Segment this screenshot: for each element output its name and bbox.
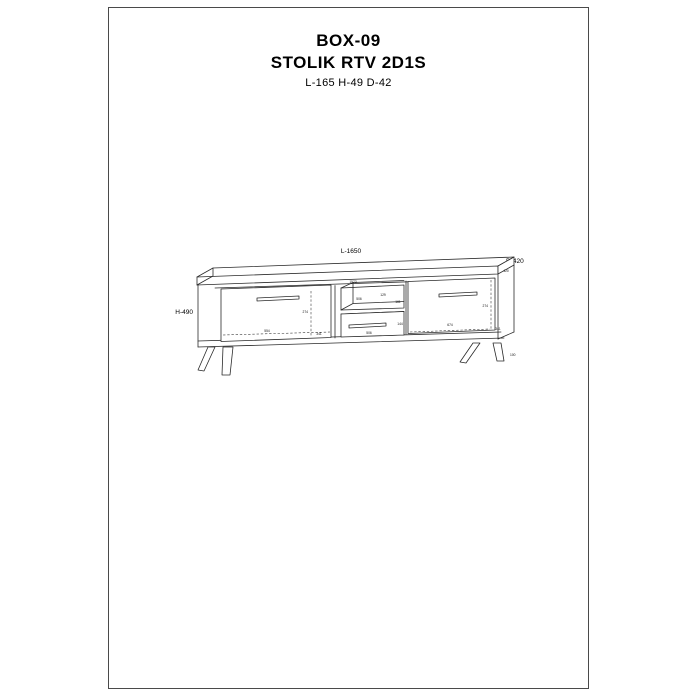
niche-width-label: 506 <box>356 297 362 301</box>
drawer: 144 506 <box>341 312 404 338</box>
drawer-width-label: 506 <box>366 331 372 335</box>
left-door: 274 554 341 <box>221 285 331 342</box>
drawer-height-label: 144 <box>397 322 403 326</box>
left-door-width-label: 554 <box>264 329 270 333</box>
niche-depth-label: 161 <box>395 300 401 304</box>
screenshot-canvas: BOX-09 STOLIK RTV 2D1S L-165 H-49 D-42 L… <box>0 0 700 700</box>
leg-height-label: 100 <box>510 353 516 357</box>
right-door: 274 674 341 <box>406 278 501 334</box>
left-door-height-label: 274 <box>302 310 308 314</box>
rear-right-leg <box>493 343 504 361</box>
dim-height-label: H-490 <box>175 309 193 316</box>
top-panel-depth-label: 420 <box>503 269 509 273</box>
right-door-width-label: 674 <box>447 323 453 327</box>
rear-left-leg <box>222 347 233 375</box>
legs: 100 <box>198 343 516 375</box>
front-left-leg <box>198 347 215 371</box>
front-right-leg <box>460 343 480 363</box>
niche-height-label: 129 <box>380 293 386 297</box>
right-door-height-label: 274 <box>482 304 488 308</box>
right-door-diag-label: 341 <box>495 327 501 331</box>
dim-length-label: L-1650 <box>341 248 362 255</box>
tv-stand-technical-drawing: L-1650 D-420 H-490 1573 420 <box>109 8 590 690</box>
left-door-diag-label: 341 <box>316 332 322 336</box>
page-frame: BOX-09 STOLIK RTV 2D1S L-165 H-49 D-42 L… <box>108 7 589 689</box>
